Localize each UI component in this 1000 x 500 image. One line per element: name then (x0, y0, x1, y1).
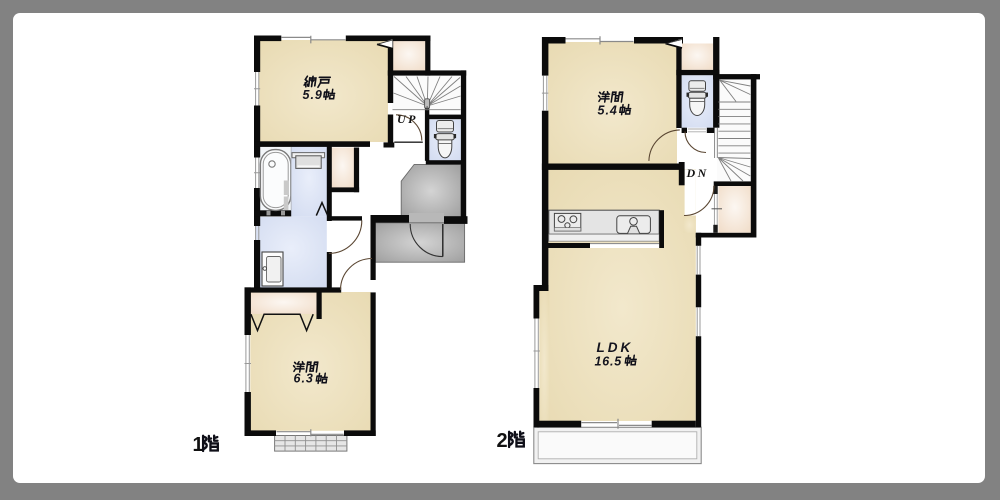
svg-text:DN: DN (686, 166, 709, 180)
svg-text:5.4: 5.4 (598, 104, 618, 118)
svg-text:16.5: 16.5 (595, 355, 623, 369)
svg-text:6.3: 6.3 (294, 372, 314, 386)
svg-text:LDK: LDK (597, 340, 634, 355)
svg-text:2: 2 (497, 430, 508, 452)
svg-text:5.9: 5.9 (303, 88, 323, 102)
svg-text:UP: UP (397, 112, 418, 126)
